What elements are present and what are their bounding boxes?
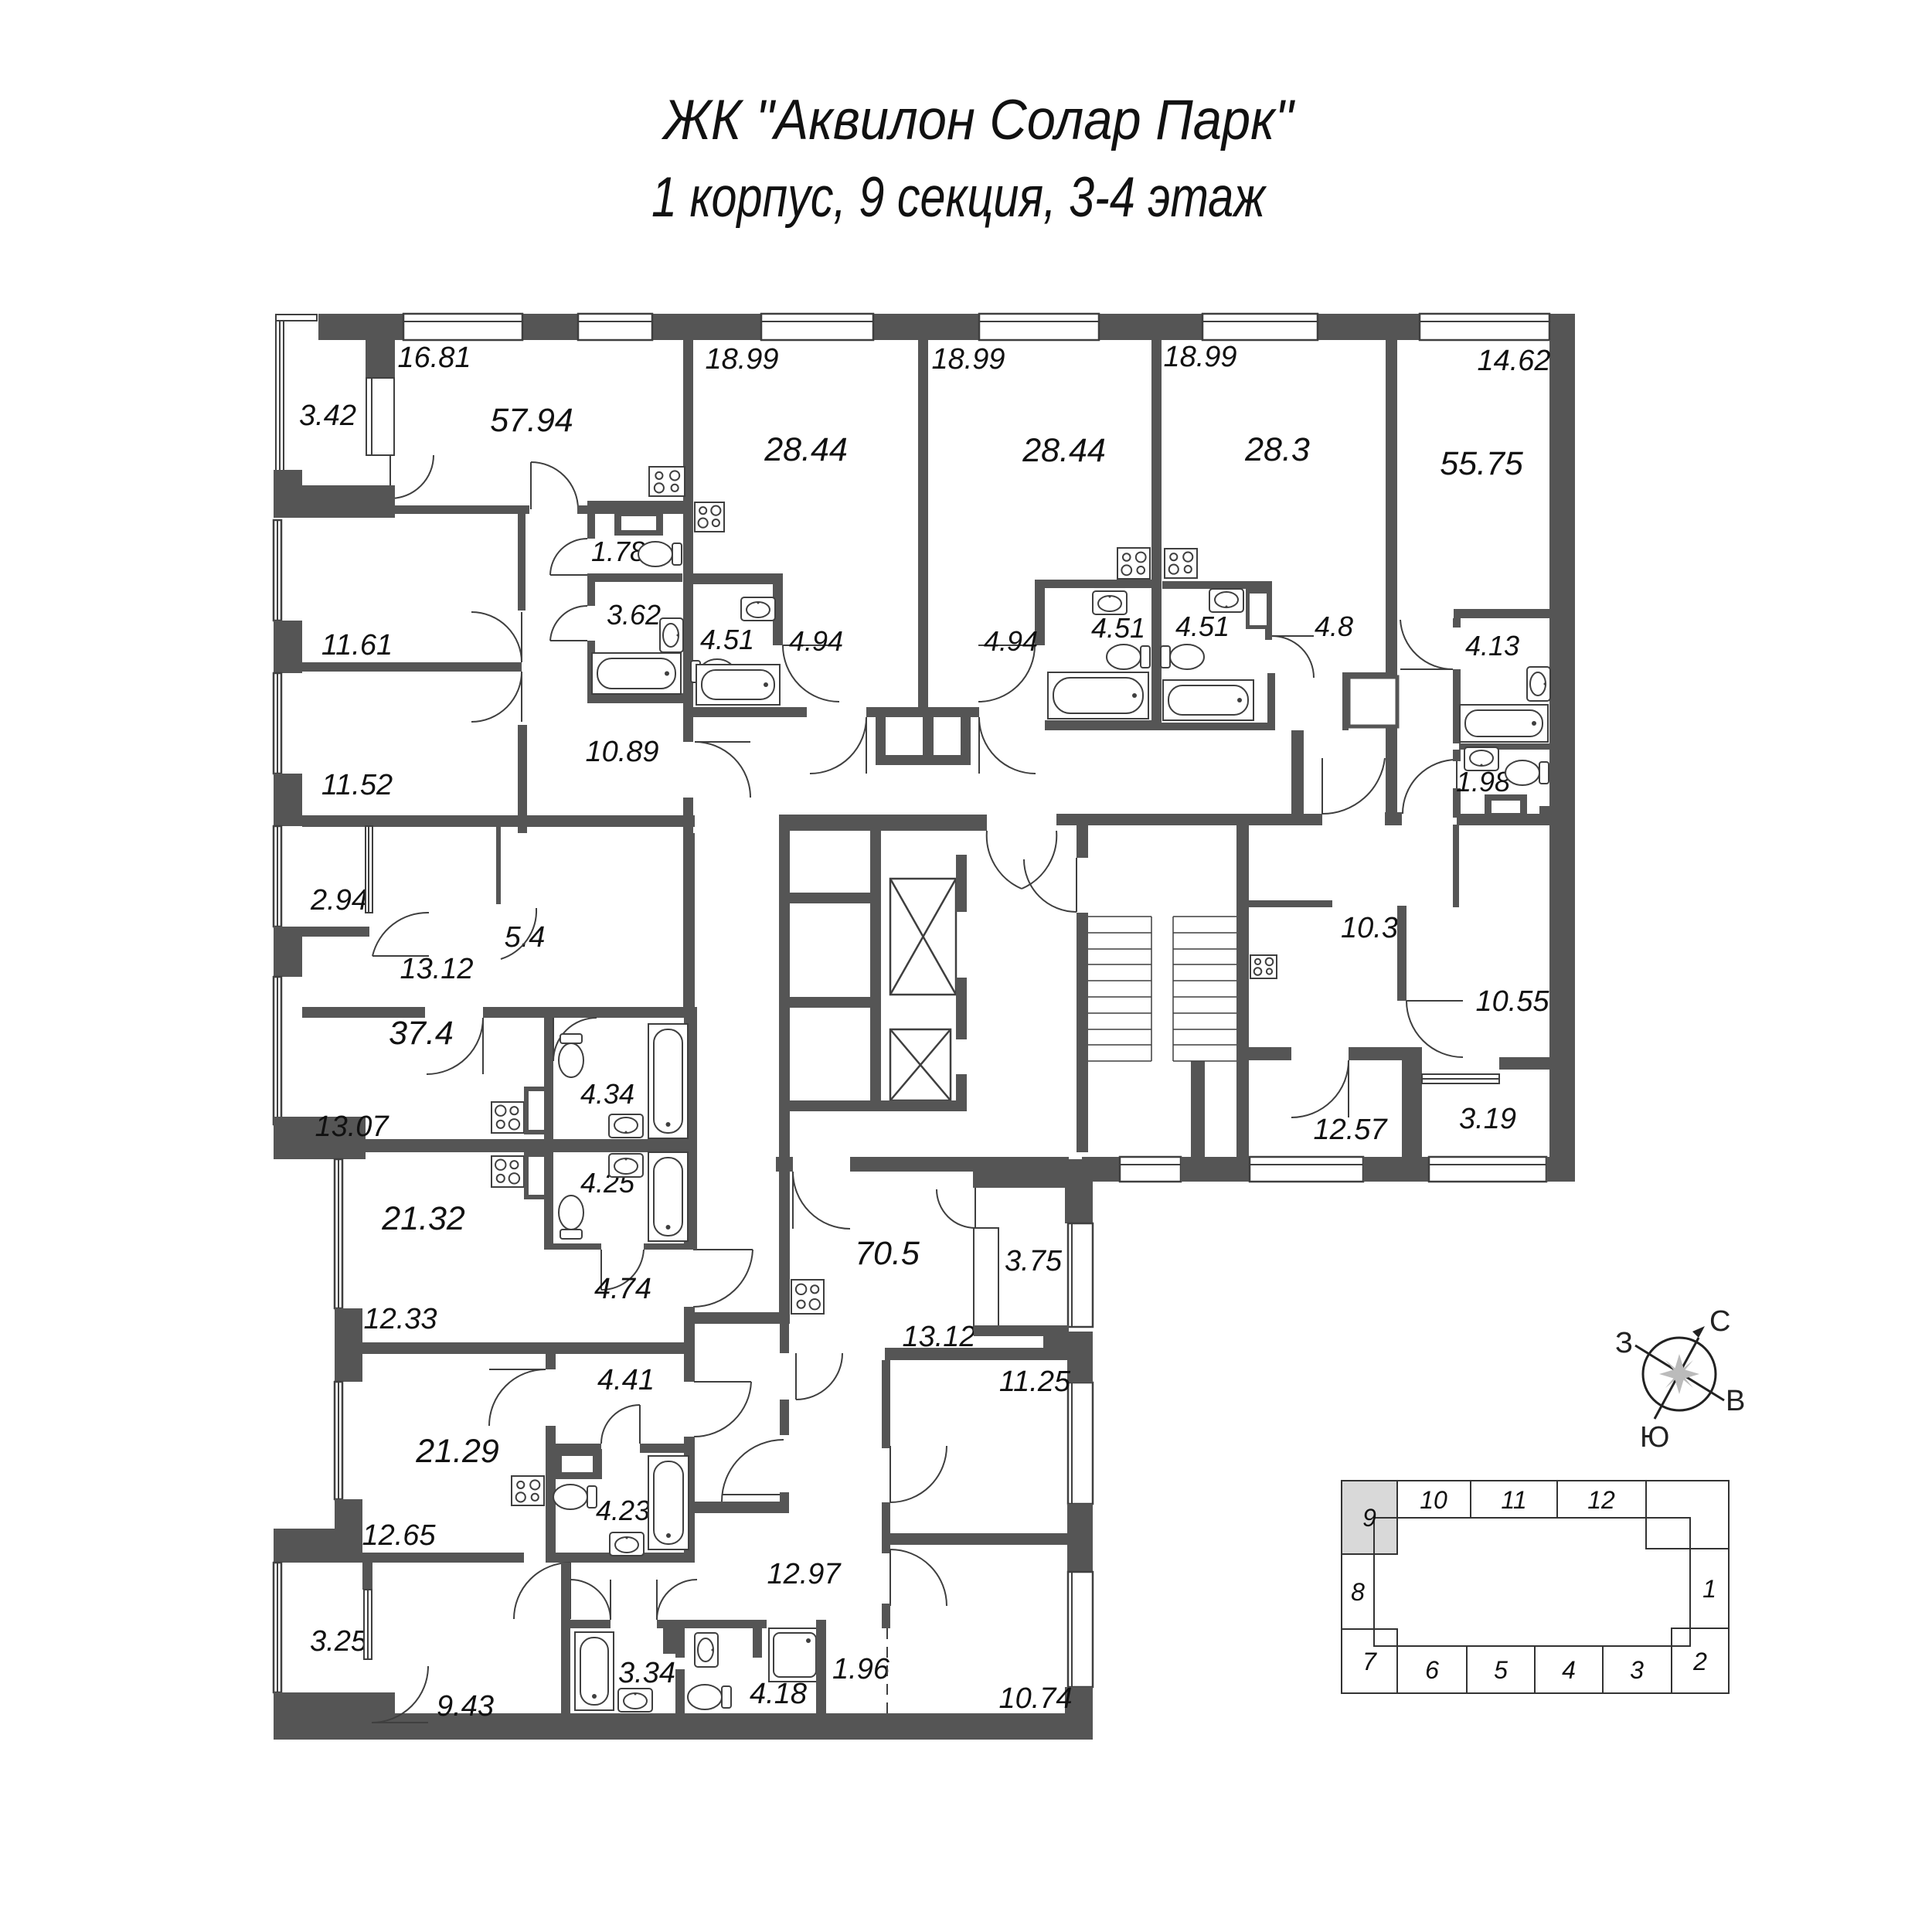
- svg-text:2.94: 2.94: [310, 884, 368, 917]
- svg-text:10: 10: [1420, 1486, 1447, 1514]
- svg-text:6: 6: [1425, 1656, 1439, 1684]
- svg-text:16.81: 16.81: [397, 342, 471, 374]
- svg-text:57.94: 57.94: [490, 402, 573, 439]
- svg-text:5: 5: [1494, 1656, 1508, 1684]
- svg-text:4.13: 4.13: [1465, 630, 1519, 662]
- svg-text:14.62: 14.62: [1477, 345, 1550, 377]
- svg-text:З: З: [1615, 1327, 1633, 1359]
- svg-text:13.07: 13.07: [315, 1111, 389, 1143]
- svg-text:3.62: 3.62: [607, 599, 661, 631]
- svg-text:28.44: 28.44: [1022, 432, 1106, 469]
- svg-text:4.34: 4.34: [580, 1078, 634, 1110]
- svg-text:4.8: 4.8: [1315, 611, 1353, 642]
- svg-text:4.51: 4.51: [1091, 612, 1145, 644]
- svg-text:11.61: 11.61: [321, 629, 393, 662]
- svg-text:12.97: 12.97: [767, 1558, 842, 1590]
- svg-text:7: 7: [1362, 1648, 1377, 1675]
- svg-text:11.52: 11.52: [321, 769, 393, 801]
- svg-text:18.99: 18.99: [705, 343, 778, 376]
- svg-text:4.51: 4.51: [1175, 611, 1230, 642]
- svg-text:13.12: 13.12: [400, 953, 473, 985]
- svg-text:1.78: 1.78: [591, 536, 645, 567]
- svg-text:4.18: 4.18: [750, 1678, 807, 1710]
- svg-text:4.94: 4.94: [789, 625, 843, 657]
- svg-text:4: 4: [1562, 1656, 1576, 1684]
- svg-text:70.5: 70.5: [855, 1235, 920, 1272]
- svg-text:4.41: 4.41: [597, 1364, 655, 1396]
- svg-text:4.23: 4.23: [596, 1495, 650, 1526]
- svg-text:21.29: 21.29: [415, 1433, 499, 1470]
- svg-text:12.65: 12.65: [362, 1519, 436, 1552]
- svg-text:10.3: 10.3: [1341, 912, 1398, 944]
- svg-text:2: 2: [1692, 1648, 1707, 1675]
- svg-text:1 корпус, 9 секция, 3-4 этаж: 1 корпус, 9 секция, 3-4 этаж: [651, 166, 1267, 229]
- svg-text:10.89: 10.89: [585, 736, 658, 768]
- svg-text:3.19: 3.19: [1459, 1103, 1516, 1135]
- svg-text:В: В: [1726, 1385, 1745, 1417]
- svg-text:Ю: Ю: [1640, 1421, 1669, 1454]
- svg-text:4.74: 4.74: [594, 1273, 651, 1305]
- svg-text:ЖК "Аквилон Солар Парк": ЖК "Аквилон Солар Парк": [662, 89, 1296, 151]
- svg-text:12: 12: [1587, 1486, 1615, 1514]
- svg-text:11.25: 11.25: [999, 1366, 1071, 1398]
- svg-text:10.55: 10.55: [1475, 985, 1549, 1018]
- svg-text:3.25: 3.25: [310, 1625, 368, 1658]
- svg-text:18.99: 18.99: [931, 343, 1005, 376]
- svg-text:18.99: 18.99: [1163, 341, 1236, 373]
- svg-text:3.34: 3.34: [618, 1657, 675, 1689]
- svg-text:9: 9: [1362, 1504, 1376, 1532]
- svg-text:21.32: 21.32: [381, 1200, 465, 1237]
- svg-text:55.75: 55.75: [1440, 445, 1524, 482]
- svg-text:1: 1: [1702, 1575, 1716, 1603]
- svg-text:37.4: 37.4: [389, 1015, 454, 1052]
- svg-text:С: С: [1709, 1305, 1730, 1338]
- svg-text:3: 3: [1630, 1656, 1644, 1684]
- svg-text:4.94: 4.94: [984, 625, 1038, 657]
- svg-text:12.33: 12.33: [363, 1303, 437, 1335]
- svg-text:28.3: 28.3: [1244, 431, 1310, 468]
- svg-text:1.96: 1.96: [832, 1653, 890, 1685]
- svg-text:9.43: 9.43: [437, 1690, 494, 1723]
- svg-text:28.44: 28.44: [764, 431, 848, 468]
- svg-text:5.4: 5.4: [505, 921, 546, 954]
- svg-text:8: 8: [1351, 1578, 1365, 1606]
- svg-text:11: 11: [1501, 1486, 1526, 1514]
- svg-text:3.75: 3.75: [1005, 1245, 1063, 1277]
- svg-text:10.74: 10.74: [998, 1682, 1072, 1715]
- svg-text:3.42: 3.42: [299, 400, 356, 432]
- svg-text:4.51: 4.51: [700, 624, 754, 655]
- svg-text:12.57: 12.57: [1313, 1114, 1388, 1146]
